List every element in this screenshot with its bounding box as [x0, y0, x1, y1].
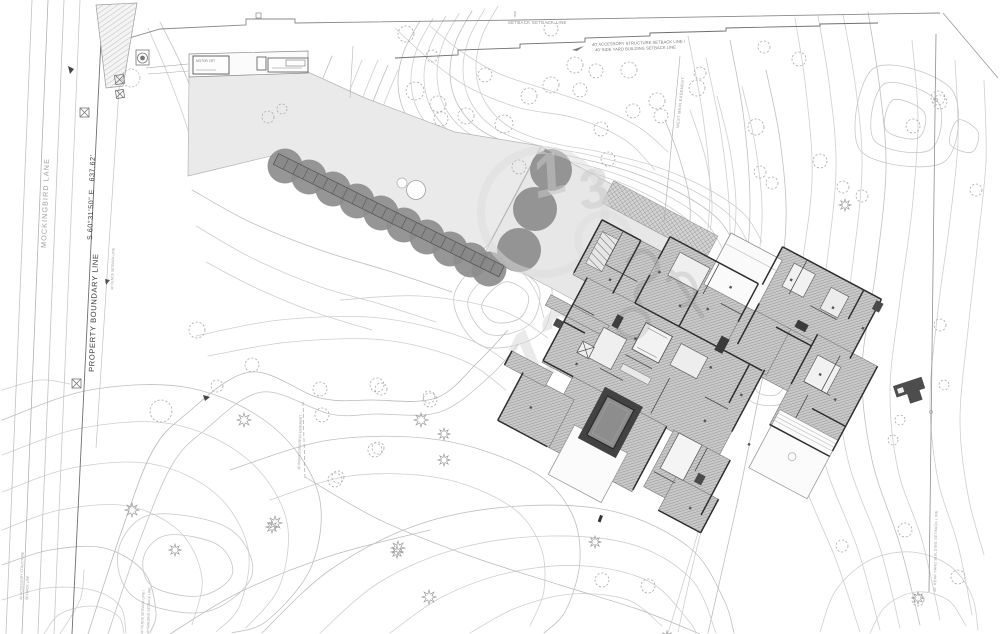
svg-text:SETBACK LINE: SETBACK LINE: [25, 575, 30, 600]
svg-text:40' FENCE SETBACK LINE: 40' FENCE SETBACK LINE: [110, 247, 115, 290]
svg-text:SETBACK SETBACK LINE: SETBACK SETBACK LINE: [508, 20, 567, 25]
svg-text:40' INGRESS/EGRESS EASEMENT: 40' INGRESS/EGRESS EASEMENT: [297, 415, 303, 470]
svg-text:40' FENCE SETBACK LINE /: 40' FENCE SETBACK LINE /: [140, 590, 146, 634]
svg-text:MOTOR CRT: MOTOR CRT: [196, 59, 215, 63]
svg-text:40' REAR YARD BUILDING SETBACK: 40' REAR YARD BUILDING SETBACK LINE: [933, 510, 938, 592]
svg-text:MOCKINGBIRD LANE: MOCKINGBIRD LANE: [39, 158, 51, 248]
svg-text:S 60°31'50” E 637.62’: S 60°31'50” E 637.62’: [86, 154, 97, 240]
svg-text:40' BUILDING SETBACK LINE: 40' BUILDING SETBACK LINE: [146, 587, 152, 634]
svg-text:PROPERTY BOUNDARY LINE: PROPERTY BOUNDARY LINE: [87, 253, 100, 372]
svg-text:WEST MAIN EASEMENT: WEST MAIN EASEMENT: [675, 76, 685, 128]
